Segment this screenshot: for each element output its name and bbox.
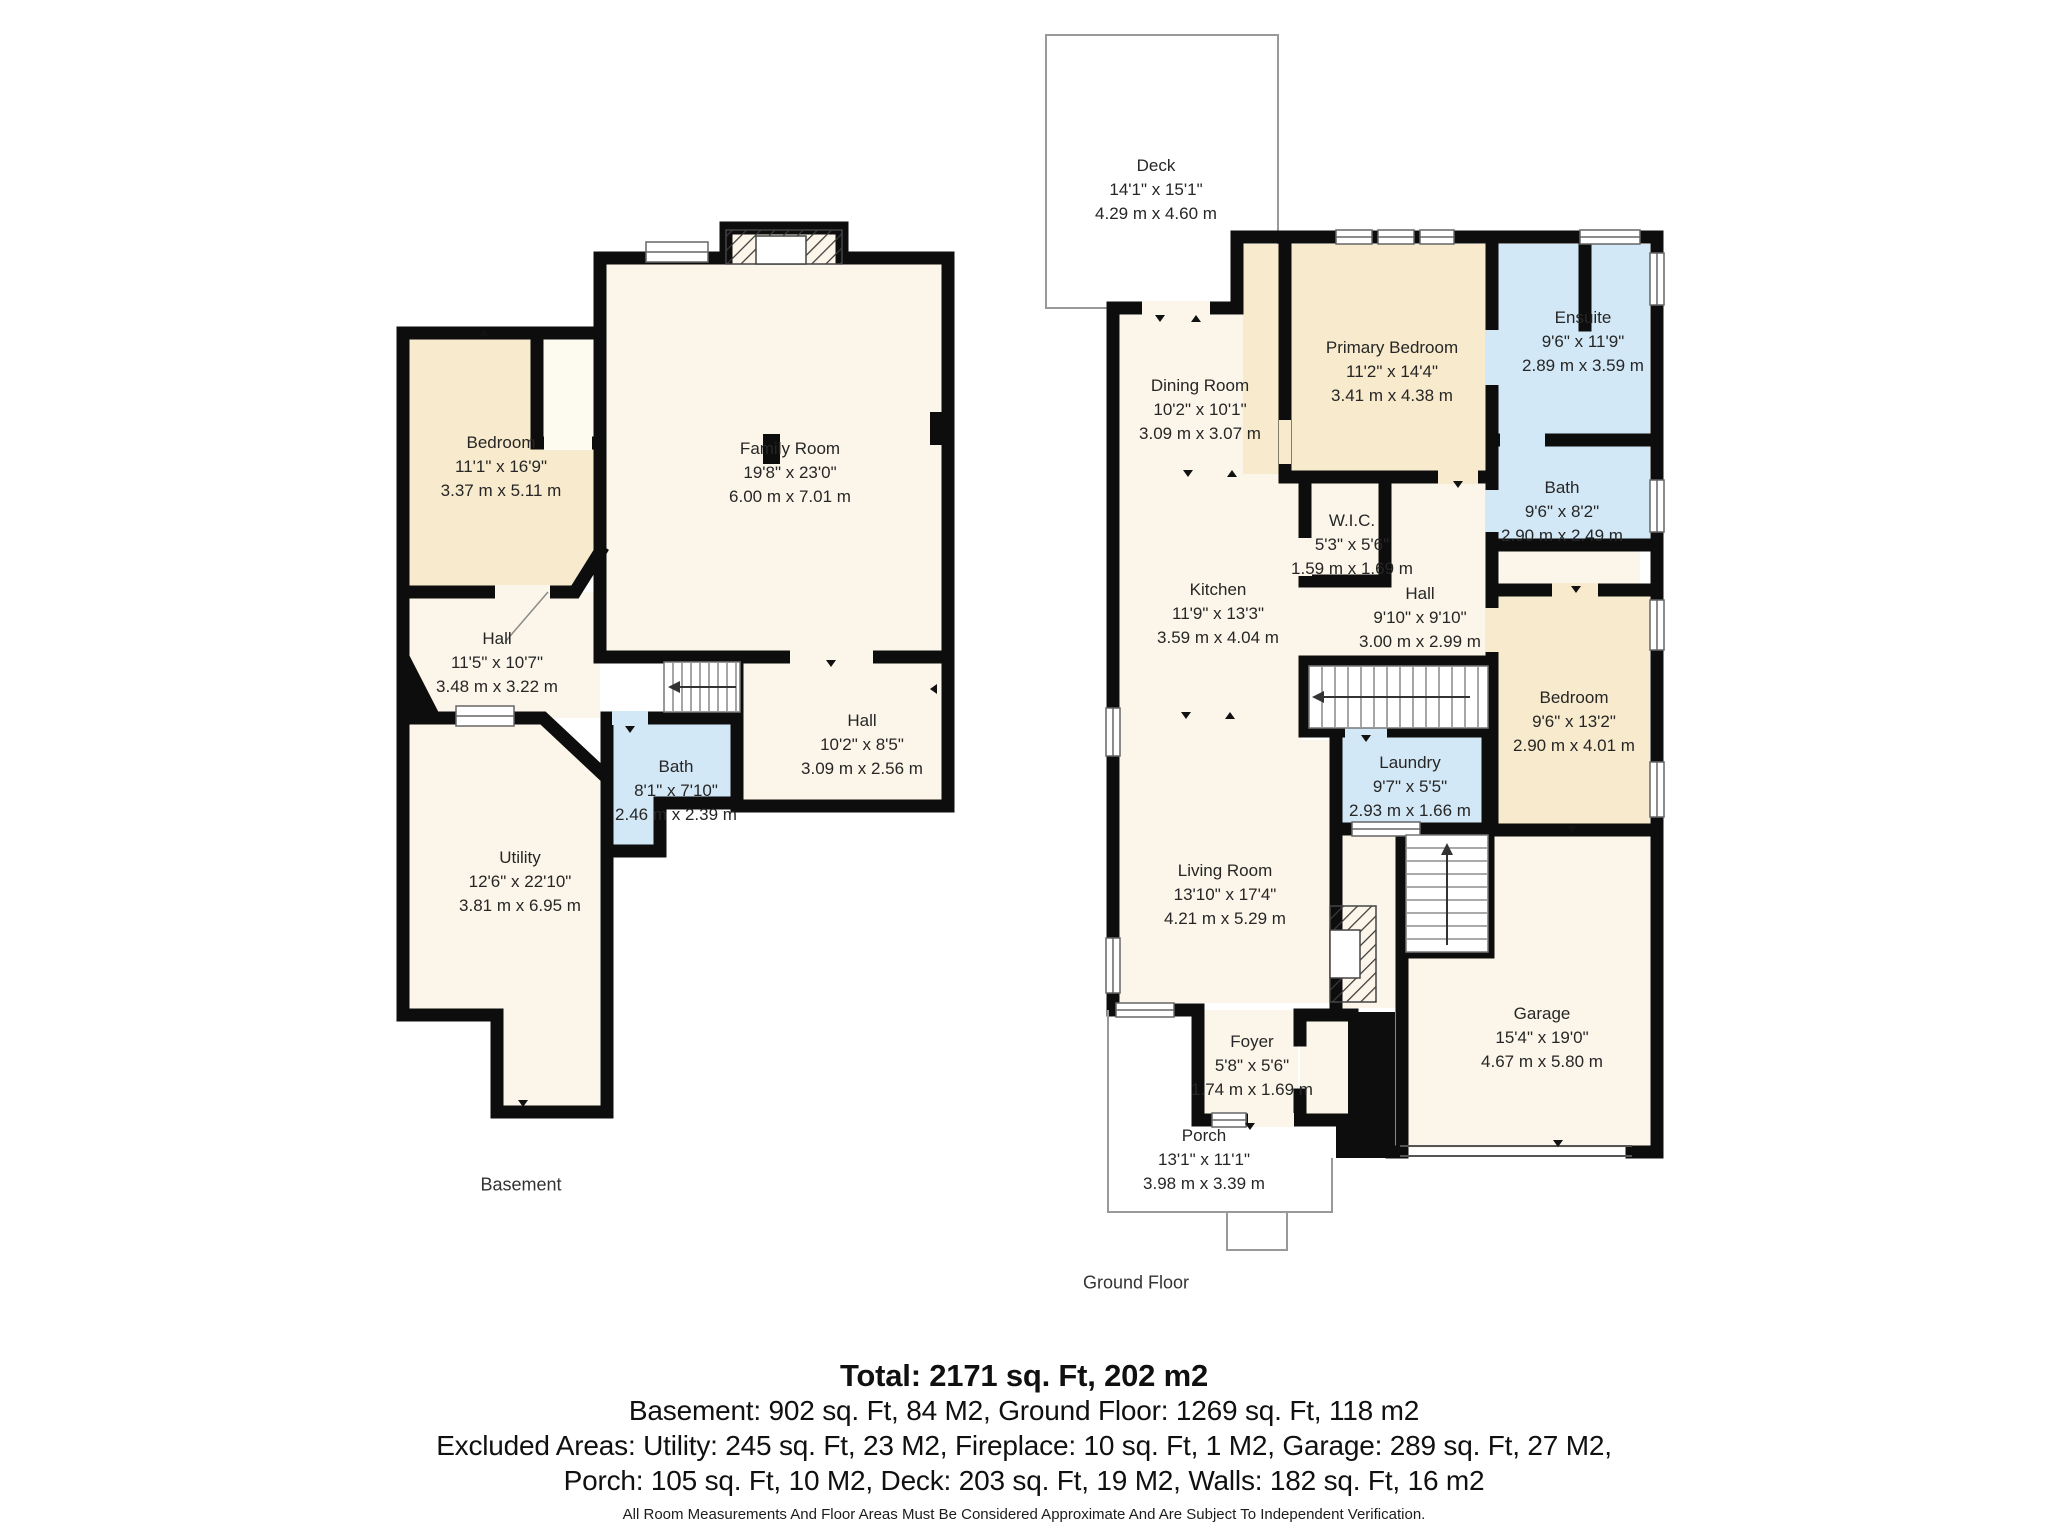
living-fireplace-icon	[1330, 906, 1376, 1002]
area-summary: Total: 2171 sq. Ft, 202 m2 Basement: 902…	[0, 1358, 2048, 1498]
basement-bath-door	[612, 711, 648, 725]
room-label-kitchen: Kitchen 11'9" x 13'3" 3.59 m x 4.04 m	[1157, 578, 1279, 650]
room-label-laundry: Laundry 9'7" x 5'5" 2.93 m x 1.66 m	[1349, 751, 1471, 823]
room-label-dining-room: Dining Room 10'2" x 10'1" 3.09 m x 3.07 …	[1139, 374, 1261, 446]
ensuite-bath-opening	[1500, 433, 1545, 447]
chimney-wall-mass	[1348, 1012, 1395, 1158]
basement-fireplace-icon	[726, 230, 842, 264]
room-label-porch: Porch 13'1" x 11'1" 3.98 m x 3.39 m	[1143, 1124, 1265, 1196]
basement-wall-nub	[930, 412, 948, 445]
ground-floor-caption: Ground Floor	[1083, 1273, 1189, 1294]
room-label-garage: Garage 15'4" x 19'0" 4.67 m x 5.80 m	[1481, 1002, 1603, 1074]
room-label-basement-bedroom: Bedroom 11'1" x 16'9" 3.37 m x 5.11 m	[441, 431, 562, 503]
room-label-basement-utility: Utility 12'6" x 22'10" 3.81 m x 6.95 m	[459, 846, 581, 918]
room-label-bedroom2: Bedroom 9'6" x 13'2" 2.90 m x 4.01 m	[1513, 686, 1635, 758]
room-label-hall2: Hall 9'10" x 9'10" 3.00 m x 2.99 m	[1359, 582, 1481, 654]
floorplan-canvas	[0, 0, 2048, 1536]
basement-bedroom-door	[495, 585, 550, 599]
room-label-primary-bedroom: Primary Bedroom 11'2" x 14'4" 3.41 m x 4…	[1326, 336, 1458, 408]
basement-closet-floor	[537, 333, 600, 443]
disclaimer: All Room Measurements And Floor Areas Mu…	[0, 1506, 2048, 1523]
ground-stairs-icon	[1309, 666, 1488, 728]
room-label-living-room: Living Room 13'10" x 17'4" 4.21 m x 5.29…	[1164, 859, 1286, 931]
room-label-wic: W.I.C. 5'3" x 5'6" 1.59 m x 1.69 m	[1291, 509, 1413, 581]
bedroom2-closet-floor	[1500, 549, 1640, 587]
primary-door-left	[1279, 420, 1291, 464]
summary-total: Total: 2171 sq. Ft, 202 m2	[0, 1358, 2048, 1393]
bath2-door	[1485, 490, 1499, 532]
room-label-foyer: Foyer 5'8" x 5'6" 1.74 m x 1.69 m	[1191, 1030, 1313, 1102]
bedroom2-door	[1485, 608, 1499, 652]
room-label-basement-family-room: Family Room 19'8" x 23'0" 6.00 m x 7.01 …	[729, 437, 851, 509]
summary-line2: Basement: 902 sq. Ft, 84 M2, Ground Floo…	[0, 1393, 2048, 1428]
basement-stairs-icon	[664, 662, 740, 712]
room-label-bath2: Bath 9'6" x 8'2" 2.90 m x 2.49 m	[1501, 476, 1623, 548]
room-label-deck: Deck 14'1" x 15'1" 4.29 m x 4.60 m	[1095, 154, 1217, 226]
room-label-basement-hall2: Hall 10'2" x 8'5" 3.09 m x 2.56 m	[801, 709, 923, 781]
summary-line4: Porch: 105 sq. Ft, 10 M2, Deck: 203 sq. …	[0, 1463, 2048, 1498]
room-label-basement-bath: Bath 8'1" x 7'10" 2.46 m x 2.39 m	[615, 755, 737, 827]
room-label-basement-hall: Hall 11'5" x 10'7" 3.48 m x 3.22 m	[436, 627, 558, 699]
basement-caption: Basement	[480, 1175, 561, 1196]
chimney-wall-mass2	[1336, 1125, 1352, 1158]
room-label-ensuite: Ensuite 9'6" x 11'9" 2.89 m x 3.59 m	[1522, 306, 1644, 378]
basement-access-stairs-icon	[1406, 835, 1488, 952]
ensuite-door	[1485, 330, 1499, 385]
summary-line3: Excluded Areas: Utility: 245 sq. Ft, 23 …	[0, 1428, 2048, 1463]
deck-door	[1142, 301, 1210, 315]
